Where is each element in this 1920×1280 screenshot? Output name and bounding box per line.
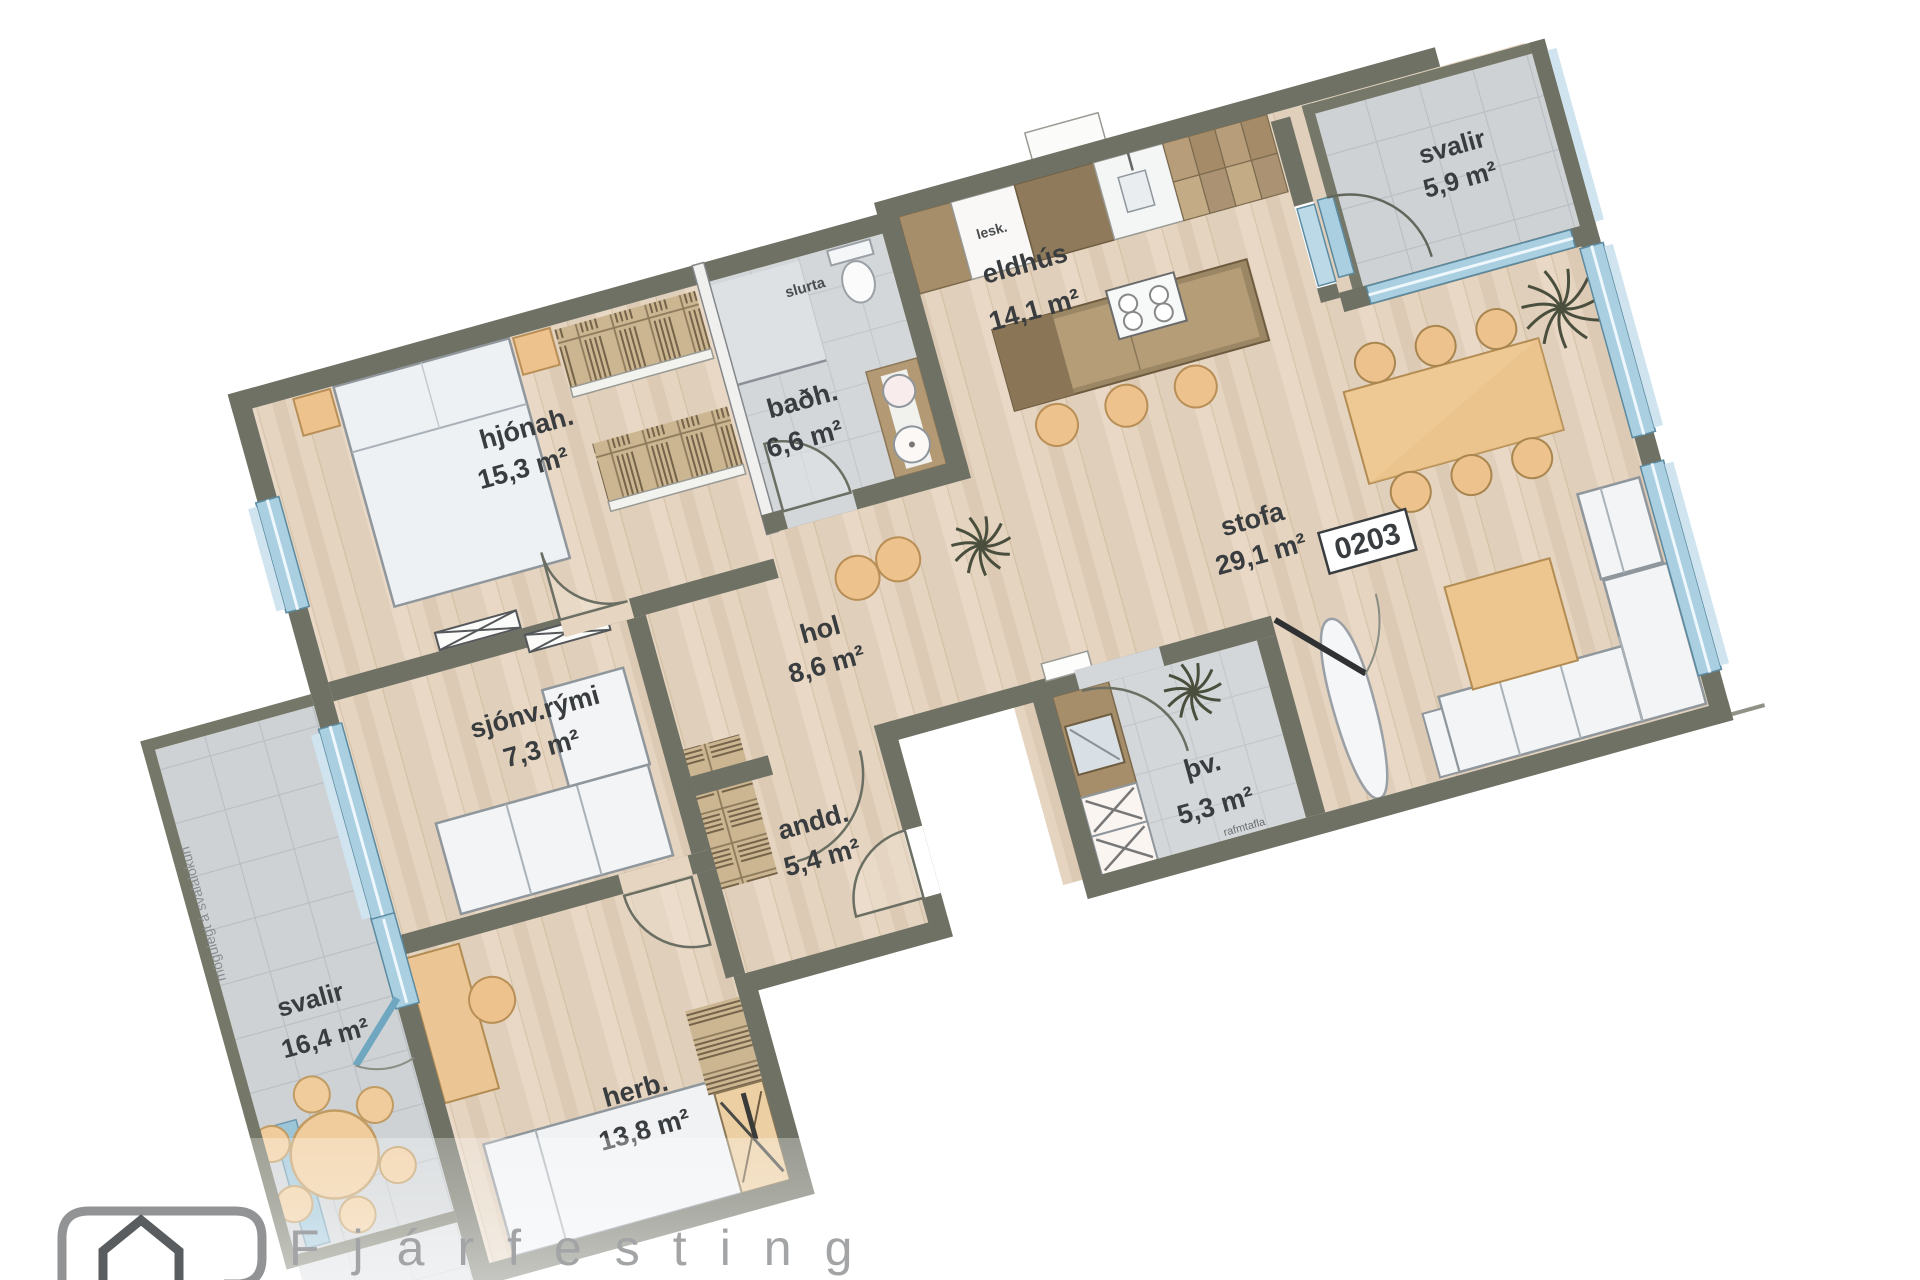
svg-text:Fjárfesting: Fjárfesting: [289, 1220, 885, 1276]
